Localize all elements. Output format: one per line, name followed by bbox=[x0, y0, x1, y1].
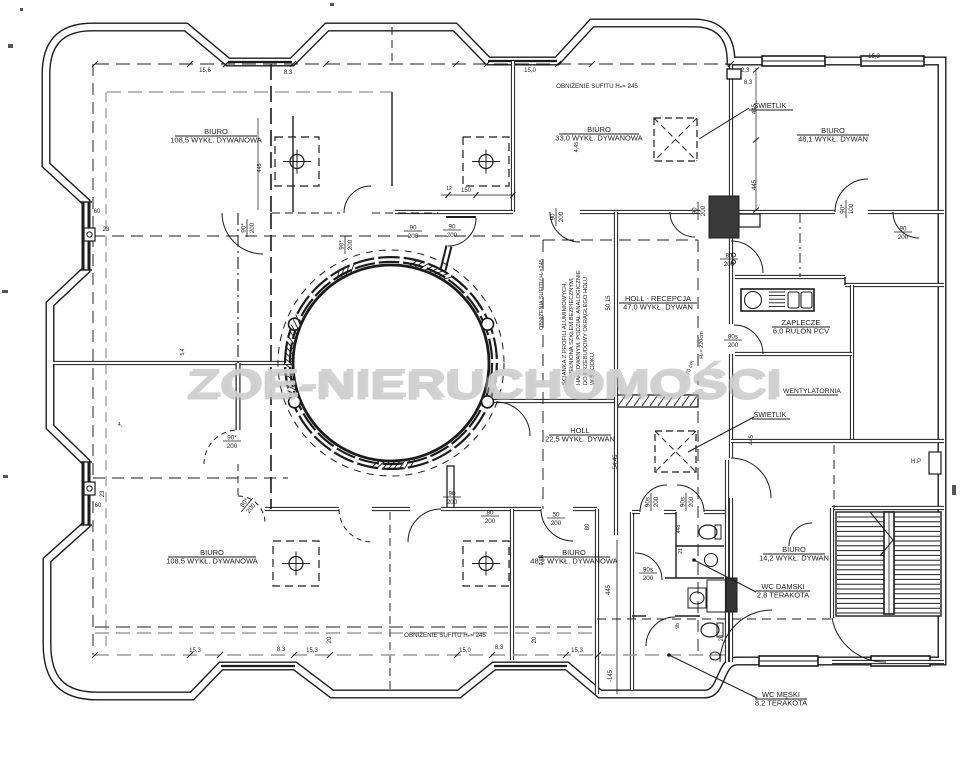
svg-text:ŚWIETLIK: ŚWIETLIK bbox=[754, 410, 787, 419]
svg-text:90: 90 bbox=[409, 225, 417, 232]
svg-text:100: 100 bbox=[848, 203, 855, 214]
svg-text:200: 200 bbox=[643, 575, 654, 582]
svg-text:15,0: 15,0 bbox=[524, 68, 536, 74]
svg-text:4,: 4, bbox=[118, 422, 122, 428]
svg-text:60: 60 bbox=[94, 209, 101, 215]
svg-text:2,3: 2,3 bbox=[741, 68, 750, 74]
svg-text:200: 200 bbox=[551, 520, 562, 527]
svg-text:200: 200 bbox=[724, 261, 735, 268]
svg-text:200: 200 bbox=[558, 211, 565, 222]
svg-text:15,3: 15,3 bbox=[189, 648, 201, 654]
svg-text:22,5 WYKŁ. DYWAN: 22,5 WYKŁ. DYWAN bbox=[545, 435, 615, 444]
svg-text:OBNIŻENIA SUFITU Hₙ=245: OBNIŻENIA SUFITU Hₙ=245 bbox=[538, 259, 545, 330]
svg-text:0,8N: 0,8N bbox=[539, 554, 545, 565]
svg-text:80: 80 bbox=[486, 510, 494, 517]
svg-text:21: 21 bbox=[678, 548, 684, 554]
svg-text:90: 90 bbox=[550, 213, 557, 221]
svg-text:445: 445 bbox=[752, 179, 758, 190]
svg-text:200: 200 bbox=[485, 518, 496, 525]
svg-text:90: 90 bbox=[692, 207, 699, 215]
svg-text:90*: 90* bbox=[241, 223, 248, 233]
svg-text:ŚWIETLIK: ŚWIETLIK bbox=[754, 101, 787, 110]
svg-text:448: 448 bbox=[676, 525, 682, 534]
svg-text:90: 90 bbox=[448, 491, 456, 498]
svg-text:90: 90 bbox=[899, 226, 907, 233]
svg-text:15,3: 15,3 bbox=[868, 54, 880, 60]
svg-text:200: 200 bbox=[227, 443, 238, 450]
svg-text:200: 200 bbox=[898, 234, 909, 241]
svg-text:200: 200 bbox=[347, 239, 354, 250]
svg-text:200: 200 bbox=[728, 342, 739, 349]
svg-text:2,8 TERAKOTA: 2,8 TERAKOTA bbox=[757, 591, 809, 600]
svg-text:Hₙ= 220cm: Hₙ= 220cm bbox=[699, 331, 705, 359]
svg-text:8,3: 8,3 bbox=[284, 70, 293, 76]
svg-text:14,2 WYKŁ. DYWAN: 14,2 WYKŁ. DYWAN bbox=[759, 554, 829, 563]
svg-text:WENTYLATORNIA: WENTYLATORNIA bbox=[783, 388, 841, 395]
svg-text:9b: 9b bbox=[675, 623, 681, 629]
svg-text:200: 200 bbox=[688, 496, 695, 507]
svg-text:8,2 TERAKOTA: 8,2 TERAKOTA bbox=[755, 699, 807, 708]
svg-text:15,6: 15,6 bbox=[199, 68, 211, 74]
svg-text:23: 23 bbox=[103, 227, 110, 233]
svg-text:15,3: 15,3 bbox=[571, 648, 583, 654]
svg-text:200: 200 bbox=[249, 222, 256, 233]
svg-text:90*: 90* bbox=[840, 204, 847, 214]
svg-text:80s: 80s bbox=[728, 334, 738, 341]
svg-text:OBNIŻENIE SUFITU Hₙ= 245: OBNIŻENIE SUFITU Hₙ= 245 bbox=[556, 83, 638, 90]
svg-text:108,5 WYKŁ. DYWANOWA: 108,5 WYKŁ. DYWANOWA bbox=[166, 557, 258, 566]
svg-text:80: 80 bbox=[725, 253, 733, 260]
svg-text:90*: 90* bbox=[227, 435, 237, 442]
svg-text:200: 200 bbox=[408, 233, 419, 240]
svg-text:4,45: 4,45 bbox=[574, 142, 580, 153]
svg-text:150: 150 bbox=[461, 188, 472, 194]
svg-text:200: 200 bbox=[447, 499, 458, 506]
svg-text:60: 60 bbox=[95, 503, 102, 509]
svg-text:90s: 90s bbox=[643, 567, 653, 574]
svg-text:33,0 WYKŁ. DYWANOWA: 33,0 WYKŁ. DYWANOWA bbox=[555, 134, 642, 143]
svg-text:445: 445 bbox=[749, 434, 755, 445]
svg-text:445: 445 bbox=[752, 103, 758, 114]
svg-text:200: 200 bbox=[700, 205, 707, 216]
svg-text:90: 90 bbox=[448, 224, 456, 231]
svg-text:23: 23 bbox=[100, 490, 106, 497]
svg-text:445: 445 bbox=[606, 584, 612, 595]
svg-text:200: 200 bbox=[447, 232, 458, 239]
svg-text:OBNIŻENIE SUFITU Hₙ= 245: OBNIŻENIE SUFITU Hₙ= 245 bbox=[404, 632, 486, 639]
svg-text:20: 20 bbox=[327, 636, 333, 643]
svg-text:20: 20 bbox=[532, 636, 538, 643]
svg-text:15,3: 15,3 bbox=[306, 648, 318, 654]
svg-text:50,15: 50,15 bbox=[606, 295, 612, 311]
svg-text:12: 12 bbox=[446, 186, 452, 192]
svg-text:47,0 WYKŁ. DYWAN: 47,0 WYKŁ. DYWAN bbox=[623, 303, 693, 312]
svg-text:8,3: 8,3 bbox=[744, 80, 753, 86]
svg-text:20: 20 bbox=[719, 634, 725, 641]
svg-text:200: 200 bbox=[653, 496, 660, 507]
svg-text:-145: -145 bbox=[608, 669, 614, 682]
svg-text:5,4: 5,4 bbox=[180, 348, 186, 355]
svg-text:90s: 90s bbox=[645, 497, 652, 507]
svg-text:80: 80 bbox=[585, 523, 591, 530]
svg-text:90s: 90s bbox=[680, 497, 687, 507]
svg-text:54,45: 54,45 bbox=[613, 454, 619, 470]
svg-text:6,0 RULON PCV: 6,0 RULON PCV bbox=[773, 327, 829, 336]
svg-text:90*: 90* bbox=[339, 240, 346, 250]
svg-text:50: 50 bbox=[552, 512, 560, 519]
svg-text:ZOE-NIERUCHOMOŚCI: ZOE-NIERUCHOMOŚCI bbox=[189, 360, 783, 406]
svg-text:48,1 WYKŁ. DYWAN: 48,1 WYKŁ. DYWAN bbox=[798, 135, 868, 144]
svg-text:15,0: 15,0 bbox=[459, 648, 471, 654]
svg-text:108,5 WYKŁ. DYWANOWA: 108,5 WYKŁ. DYWANOWA bbox=[170, 136, 262, 145]
svg-text:8,3: 8,3 bbox=[277, 647, 286, 653]
svg-text:8,3: 8,3 bbox=[495, 645, 504, 651]
svg-text:H.P: H.P bbox=[911, 459, 921, 465]
